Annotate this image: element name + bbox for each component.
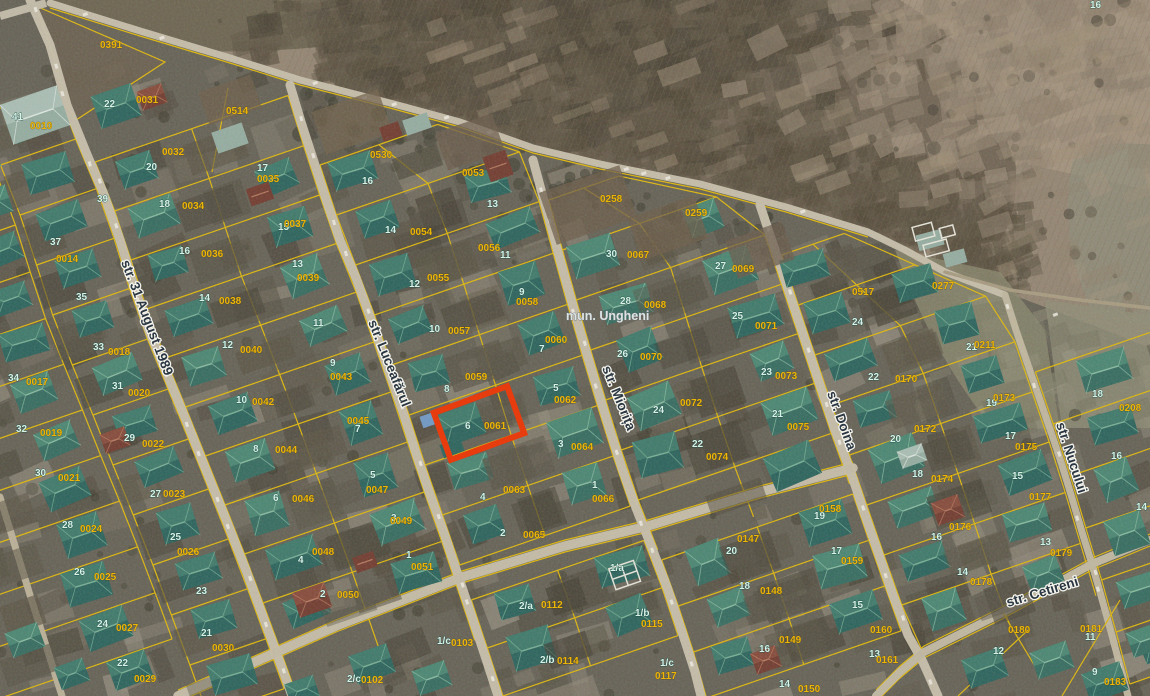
svg-text:16: 16: [362, 176, 374, 187]
svg-text:15: 15: [1012, 471, 1024, 482]
svg-text:24: 24: [852, 317, 864, 328]
svg-text:0065: 0065: [523, 530, 546, 541]
svg-text:28: 28: [620, 296, 632, 307]
svg-text:0054: 0054: [410, 227, 433, 238]
svg-text:1: 1: [406, 550, 412, 561]
svg-text:22: 22: [117, 658, 129, 669]
svg-text:0025: 0025: [94, 572, 117, 583]
svg-text:13: 13: [1040, 537, 1052, 548]
svg-text:5: 5: [370, 470, 376, 481]
svg-text:0175: 0175: [1015, 442, 1038, 453]
svg-text:0183: 0183: [1104, 677, 1127, 688]
svg-text:0026: 0026: [177, 547, 200, 558]
svg-text:0023: 0023: [163, 489, 186, 500]
svg-text:18: 18: [1092, 389, 1104, 400]
svg-text:11: 11: [500, 250, 511, 261]
svg-text:0072: 0072: [680, 398, 703, 409]
svg-text:0176: 0176: [949, 522, 972, 533]
svg-text:0391: 0391: [100, 40, 123, 51]
svg-text:22: 22: [868, 372, 880, 383]
svg-text:1/a: 1/a: [610, 563, 624, 574]
svg-text:0031: 0031: [136, 95, 159, 106]
svg-text:0036: 0036: [201, 249, 224, 260]
svg-text:0211: 0211: [974, 340, 996, 351]
svg-text:23: 23: [761, 367, 773, 378]
svg-text:37: 37: [50, 237, 62, 248]
svg-text:5: 5: [553, 383, 559, 394]
svg-text:0056: 0056: [478, 243, 501, 254]
svg-text:1/c: 1/c: [437, 636, 451, 647]
svg-text:0073: 0073: [775, 371, 798, 382]
svg-text:30: 30: [35, 468, 47, 479]
svg-text:0019: 0019: [40, 428, 63, 439]
svg-text:0067: 0067: [627, 250, 650, 261]
svg-text:14: 14: [779, 679, 791, 690]
svg-text:2/a: 2/a: [519, 601, 533, 612]
svg-text:0032: 0032: [162, 147, 185, 158]
svg-text:0530: 0530: [370, 150, 393, 161]
svg-text:1/b: 1/b: [635, 608, 649, 619]
svg-text:28: 28: [62, 520, 74, 531]
svg-text:20: 20: [890, 434, 902, 445]
svg-text:0039: 0039: [297, 273, 320, 284]
svg-text:12: 12: [222, 340, 234, 351]
svg-text:0150: 0150: [798, 684, 821, 695]
svg-text:0102: 0102: [361, 675, 384, 686]
svg-text:0180: 0180: [1008, 625, 1031, 636]
svg-text:21: 21: [201, 628, 213, 639]
svg-text:16: 16: [931, 532, 943, 543]
svg-text:0063: 0063: [503, 485, 526, 496]
svg-text:33: 33: [93, 342, 105, 353]
svg-text:17: 17: [1005, 431, 1017, 442]
svg-text:0060: 0060: [545, 335, 568, 346]
svg-text:39: 39: [97, 194, 109, 205]
svg-text:10: 10: [236, 395, 248, 406]
svg-text:0043: 0043: [330, 372, 353, 383]
svg-text:1/c: 1/c: [660, 658, 674, 669]
svg-text:2: 2: [320, 589, 326, 600]
svg-text:0149: 0149: [779, 635, 802, 646]
svg-text:20: 20: [146, 162, 158, 173]
svg-text:24: 24: [653, 405, 665, 416]
svg-text:13: 13: [487, 199, 499, 210]
svg-text:35: 35: [76, 292, 88, 303]
svg-text:0057: 0057: [448, 326, 471, 337]
svg-text:16: 16: [1090, 0, 1102, 11]
svg-text:0160: 0160: [870, 625, 893, 636]
svg-text:15: 15: [852, 600, 864, 611]
svg-text:25: 25: [170, 532, 182, 543]
svg-text:18: 18: [159, 199, 171, 210]
svg-text:30: 30: [606, 249, 618, 260]
svg-text:0024: 0024: [80, 524, 103, 535]
svg-text:0048: 0048: [312, 547, 335, 558]
svg-text:0117: 0117: [655, 671, 677, 682]
svg-text:0066: 0066: [592, 494, 615, 505]
svg-text:0040: 0040: [240, 345, 263, 356]
svg-text:3: 3: [558, 439, 564, 450]
svg-text:4: 4: [480, 492, 486, 503]
svg-text:0046: 0046: [292, 494, 315, 505]
svg-text:0174: 0174: [931, 474, 954, 485]
svg-text:0062: 0062: [554, 395, 577, 406]
svg-text:0030: 0030: [212, 643, 235, 654]
svg-text:0059: 0059: [465, 372, 488, 383]
svg-text:14: 14: [957, 567, 969, 578]
svg-text:0258: 0258: [600, 194, 623, 205]
svg-text:26: 26: [74, 567, 86, 578]
svg-text:0148: 0148: [760, 586, 783, 597]
svg-text:0115: 0115: [641, 619, 663, 630]
svg-text:1: 1: [592, 480, 598, 491]
svg-text:0161: 0161: [876, 655, 899, 666]
svg-text:0058: 0058: [516, 297, 539, 308]
svg-text:29: 29: [124, 433, 136, 444]
svg-text:23: 23: [196, 586, 208, 597]
svg-text:0114: 0114: [557, 656, 579, 667]
svg-text:0070: 0070: [640, 352, 663, 363]
svg-text:0055: 0055: [427, 273, 450, 284]
svg-text:14: 14: [199, 293, 211, 304]
svg-text:0170: 0170: [895, 374, 918, 385]
svg-text:0277: 0277: [932, 281, 955, 292]
svg-text:0022: 0022: [142, 439, 165, 450]
svg-text:0112: 0112: [541, 600, 563, 611]
svg-text:0069: 0069: [732, 264, 755, 275]
svg-text:0173: 0173: [993, 393, 1016, 404]
svg-text:24: 24: [97, 619, 109, 630]
svg-text:0159: 0159: [841, 556, 864, 567]
svg-text:0045: 0045: [347, 416, 370, 427]
svg-text:0177: 0177: [1029, 492, 1052, 503]
svg-text:0158: 0158: [819, 504, 842, 515]
svg-text:18: 18: [912, 469, 924, 480]
svg-text:21: 21: [772, 409, 784, 420]
svg-text:0027: 0027: [116, 623, 139, 634]
svg-text:20: 20: [726, 546, 738, 557]
svg-text:14: 14: [385, 225, 397, 236]
svg-text:8: 8: [444, 384, 450, 395]
svg-text:0147: 0147: [737, 534, 760, 545]
svg-text:9: 9: [330, 358, 336, 369]
svg-text:0014: 0014: [56, 254, 79, 265]
svg-text:17: 17: [257, 163, 269, 174]
svg-text:4: 4: [298, 555, 304, 566]
svg-text:22: 22: [692, 439, 704, 450]
svg-text:27: 27: [715, 261, 727, 272]
svg-text:25: 25: [732, 311, 744, 322]
svg-text:6: 6: [273, 493, 279, 504]
svg-text:9: 9: [1092, 667, 1098, 678]
svg-text:0053: 0053: [462, 168, 485, 179]
svg-text:32: 32: [16, 424, 28, 435]
svg-text:0064: 0064: [571, 442, 594, 453]
svg-text:0179: 0179: [1050, 548, 1073, 559]
svg-text:16: 16: [179, 246, 191, 257]
svg-text:0044: 0044: [275, 445, 298, 456]
svg-text:34: 34: [8, 373, 20, 384]
svg-text:13: 13: [292, 259, 304, 270]
svg-text:0075: 0075: [787, 422, 810, 433]
svg-text:0042: 0042: [252, 397, 275, 408]
svg-text:0061: 0061: [484, 421, 507, 432]
svg-text:14: 14: [1136, 502, 1148, 513]
svg-text:0208: 0208: [1119, 403, 1142, 414]
svg-text:6: 6: [465, 421, 471, 432]
svg-text:0010: 0010: [30, 121, 53, 132]
svg-text:8: 8: [253, 444, 259, 455]
svg-text:11: 11: [313, 318, 324, 329]
svg-text:2/c: 2/c: [347, 674, 361, 685]
svg-text:31: 31: [112, 381, 124, 392]
svg-text:0178: 0178: [970, 577, 993, 588]
svg-text:0103: 0103: [451, 638, 474, 649]
svg-text:0517: 0517: [852, 287, 875, 298]
svg-text:12: 12: [409, 279, 421, 290]
svg-text:0181: 0181: [1080, 624, 1103, 635]
svg-text:2/b: 2/b: [540, 655, 554, 666]
svg-text:0049: 0049: [390, 516, 413, 527]
svg-text:0050: 0050: [337, 590, 360, 601]
svg-text:mun. Ungheni: mun. Ungheni: [566, 309, 649, 323]
svg-text:0021: 0021: [58, 473, 81, 484]
svg-text:16: 16: [1111, 451, 1123, 462]
svg-text:2: 2: [500, 528, 506, 539]
svg-text:0172: 0172: [914, 424, 937, 435]
svg-text:16: 16: [759, 644, 771, 655]
svg-text:41: 41: [12, 112, 24, 123]
svg-text:10: 10: [429, 324, 441, 335]
svg-text:0514: 0514: [226, 106, 249, 117]
svg-text:26: 26: [617, 349, 629, 360]
svg-text:0038: 0038: [219, 296, 242, 307]
svg-text:0037: 0037: [284, 219, 307, 230]
svg-text:0047: 0047: [366, 485, 389, 496]
svg-text:0259: 0259: [685, 208, 708, 219]
svg-text:22: 22: [104, 99, 116, 110]
svg-text:0029: 0029: [134, 674, 157, 685]
svg-text:18: 18: [739, 581, 751, 592]
svg-text:0034: 0034: [182, 201, 205, 212]
svg-text:0035: 0035: [257, 174, 280, 185]
svg-text:12: 12: [993, 646, 1005, 657]
svg-text:27: 27: [150, 489, 162, 500]
svg-text:0020: 0020: [128, 388, 151, 399]
svg-text:0051: 0051: [411, 562, 434, 573]
svg-text:0074: 0074: [706, 452, 729, 463]
svg-text:0018: 0018: [108, 347, 131, 358]
svg-text:0071: 0071: [755, 321, 778, 332]
svg-text:0017: 0017: [26, 377, 49, 388]
